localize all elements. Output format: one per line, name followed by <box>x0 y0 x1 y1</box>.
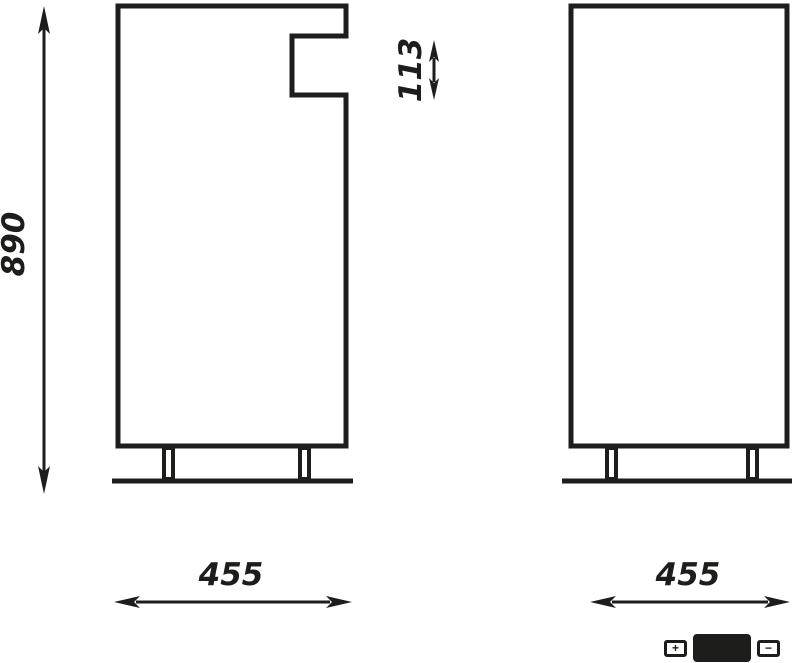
right-panel-foot-right <box>748 448 757 479</box>
zoom-level-badge <box>693 634 751 662</box>
left-panel-foot-right <box>300 448 309 479</box>
right-width-dimension: 455 <box>590 557 790 608</box>
technical-drawing-page: 890 113 455 455 + − <box>0 0 800 663</box>
zoom-out-button[interactable]: − <box>757 640 780 657</box>
height-dim-label: 890 <box>0 212 32 277</box>
zoom-in-button[interactable]: + <box>664 640 687 657</box>
technical-drawing: 890 113 455 455 <box>0 0 800 663</box>
notch-dim-label: 113 <box>393 38 429 103</box>
right-panel-foot-left <box>607 448 616 479</box>
right-panel-outline <box>571 6 787 446</box>
right-width-dim-label: 455 <box>655 557 721 593</box>
left-panel-foot-left <box>164 448 173 479</box>
zoom-widget: + − <box>664 633 784 663</box>
notch-dimension: 113 <box>393 38 439 103</box>
height-dimension: 890 <box>0 6 50 494</box>
left-panel-outline <box>118 6 346 446</box>
left-width-dim-label: 455 <box>198 557 264 593</box>
left-width-dimension: 455 <box>114 557 352 608</box>
